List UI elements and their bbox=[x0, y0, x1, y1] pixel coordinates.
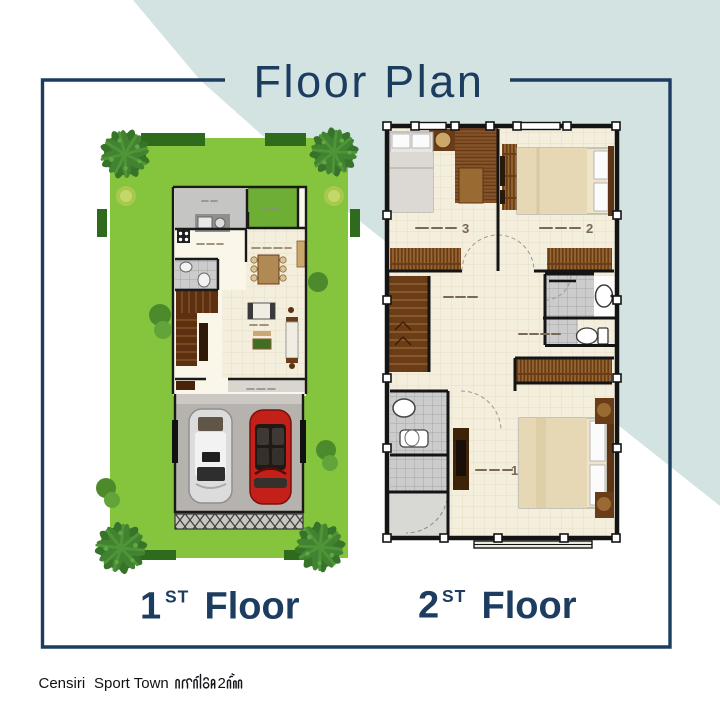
svg-text:Floor: Floor bbox=[482, 585, 577, 627]
svg-text:2: 2 bbox=[586, 221, 593, 236]
svg-text:3: 3 bbox=[462, 221, 469, 236]
svg-text:ST: ST bbox=[442, 586, 466, 606]
svg-text:2: 2 bbox=[218, 675, 226, 692]
svg-text:Censiri: Censiri bbox=[39, 675, 86, 692]
svg-text:ST: ST bbox=[165, 587, 189, 607]
svg-text:Sport Town: Sport Town bbox=[94, 675, 169, 692]
svg-text:Floor: Floor bbox=[205, 586, 300, 628]
svg-text:Floor Plan: Floor Plan bbox=[253, 56, 484, 107]
svg-text:2: 2 bbox=[418, 585, 439, 627]
svg-text:1: 1 bbox=[511, 463, 518, 478]
svg-text:1: 1 bbox=[140, 586, 161, 628]
